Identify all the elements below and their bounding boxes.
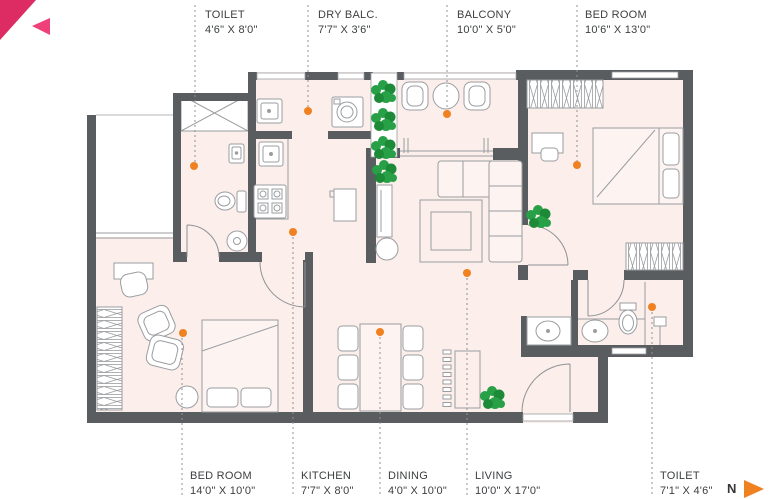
room-name: DINING: [388, 469, 447, 484]
room-name: LIVING: [475, 469, 540, 484]
room-name: BALCONY: [457, 8, 516, 23]
fridge-icon: [330, 189, 356, 221]
room-dims: 10'0" X 5'0": [457, 23, 516, 38]
label-kitchen: KITCHEN 7'7" X 8'0": [301, 469, 354, 498]
room-dims: 4'6" X 8'0": [205, 23, 258, 38]
tv-unit: [377, 185, 392, 237]
room-dims: 14'0" X 10'0": [190, 484, 255, 499]
room-dims: 7'1" X 4'6": [660, 484, 713, 499]
label-toilet-top: TOILET 4'6" X 8'0": [205, 8, 258, 37]
pouf: [376, 238, 398, 260]
room-dims: 10'0" X 17'0": [475, 484, 540, 499]
floor-plan-page: TOILET 4'6" X 8'0" DRY BALC. 7'7" X 3'6"…: [0, 0, 769, 499]
label-dining: DINING 4'0" X 10'0": [388, 469, 447, 498]
stove-icon: [254, 185, 286, 218]
balcony-furniture: [402, 82, 490, 110]
room-name: TOILET: [660, 469, 713, 484]
floor-plan-drawing: [0, 0, 769, 499]
void-area: [96, 115, 173, 238]
wardrobe-bedroom2-bottom: [626, 243, 683, 270]
stool: [176, 386, 198, 408]
room-dims: 7'7" X 3'6": [318, 23, 378, 38]
label-toilet-bottom: TOILET 7'1" X 4'6": [660, 469, 713, 498]
label-bedroom-top: BED ROOM 10'6" X 13'0": [585, 8, 650, 37]
wardrobe-bedroom1: [97, 307, 122, 410]
room-name: DRY BALC.: [318, 8, 378, 23]
balcony-table: [433, 83, 459, 109]
label-living: LIVING 10'0" X 17'0": [475, 469, 540, 498]
washing-machine-icon: [332, 97, 363, 127]
wardrobe-bedroom2-top: [527, 80, 603, 108]
room-name: TOILET: [205, 8, 258, 23]
label-dry-balcony: DRY BALC. 7'7" X 3'6": [318, 8, 378, 37]
room-dims: 10'6" X 13'0": [585, 23, 650, 38]
north-arrow-icon: [744, 480, 764, 498]
north-label: N: [727, 481, 736, 496]
room-dims: 7'7" X 8'0": [301, 484, 354, 499]
room-name: KITCHEN: [301, 469, 354, 484]
room-dims: 4'0" X 10'0": [388, 484, 447, 499]
label-balcony: BALCONY 10'0" X 5'0": [457, 8, 516, 37]
label-bedroom-bottom: BED ROOM 14'0" X 10'0": [190, 469, 255, 498]
shower-icon: [654, 317, 666, 326]
room-name: BED ROOM: [585, 8, 650, 23]
room-name: BED ROOM: [190, 469, 255, 484]
